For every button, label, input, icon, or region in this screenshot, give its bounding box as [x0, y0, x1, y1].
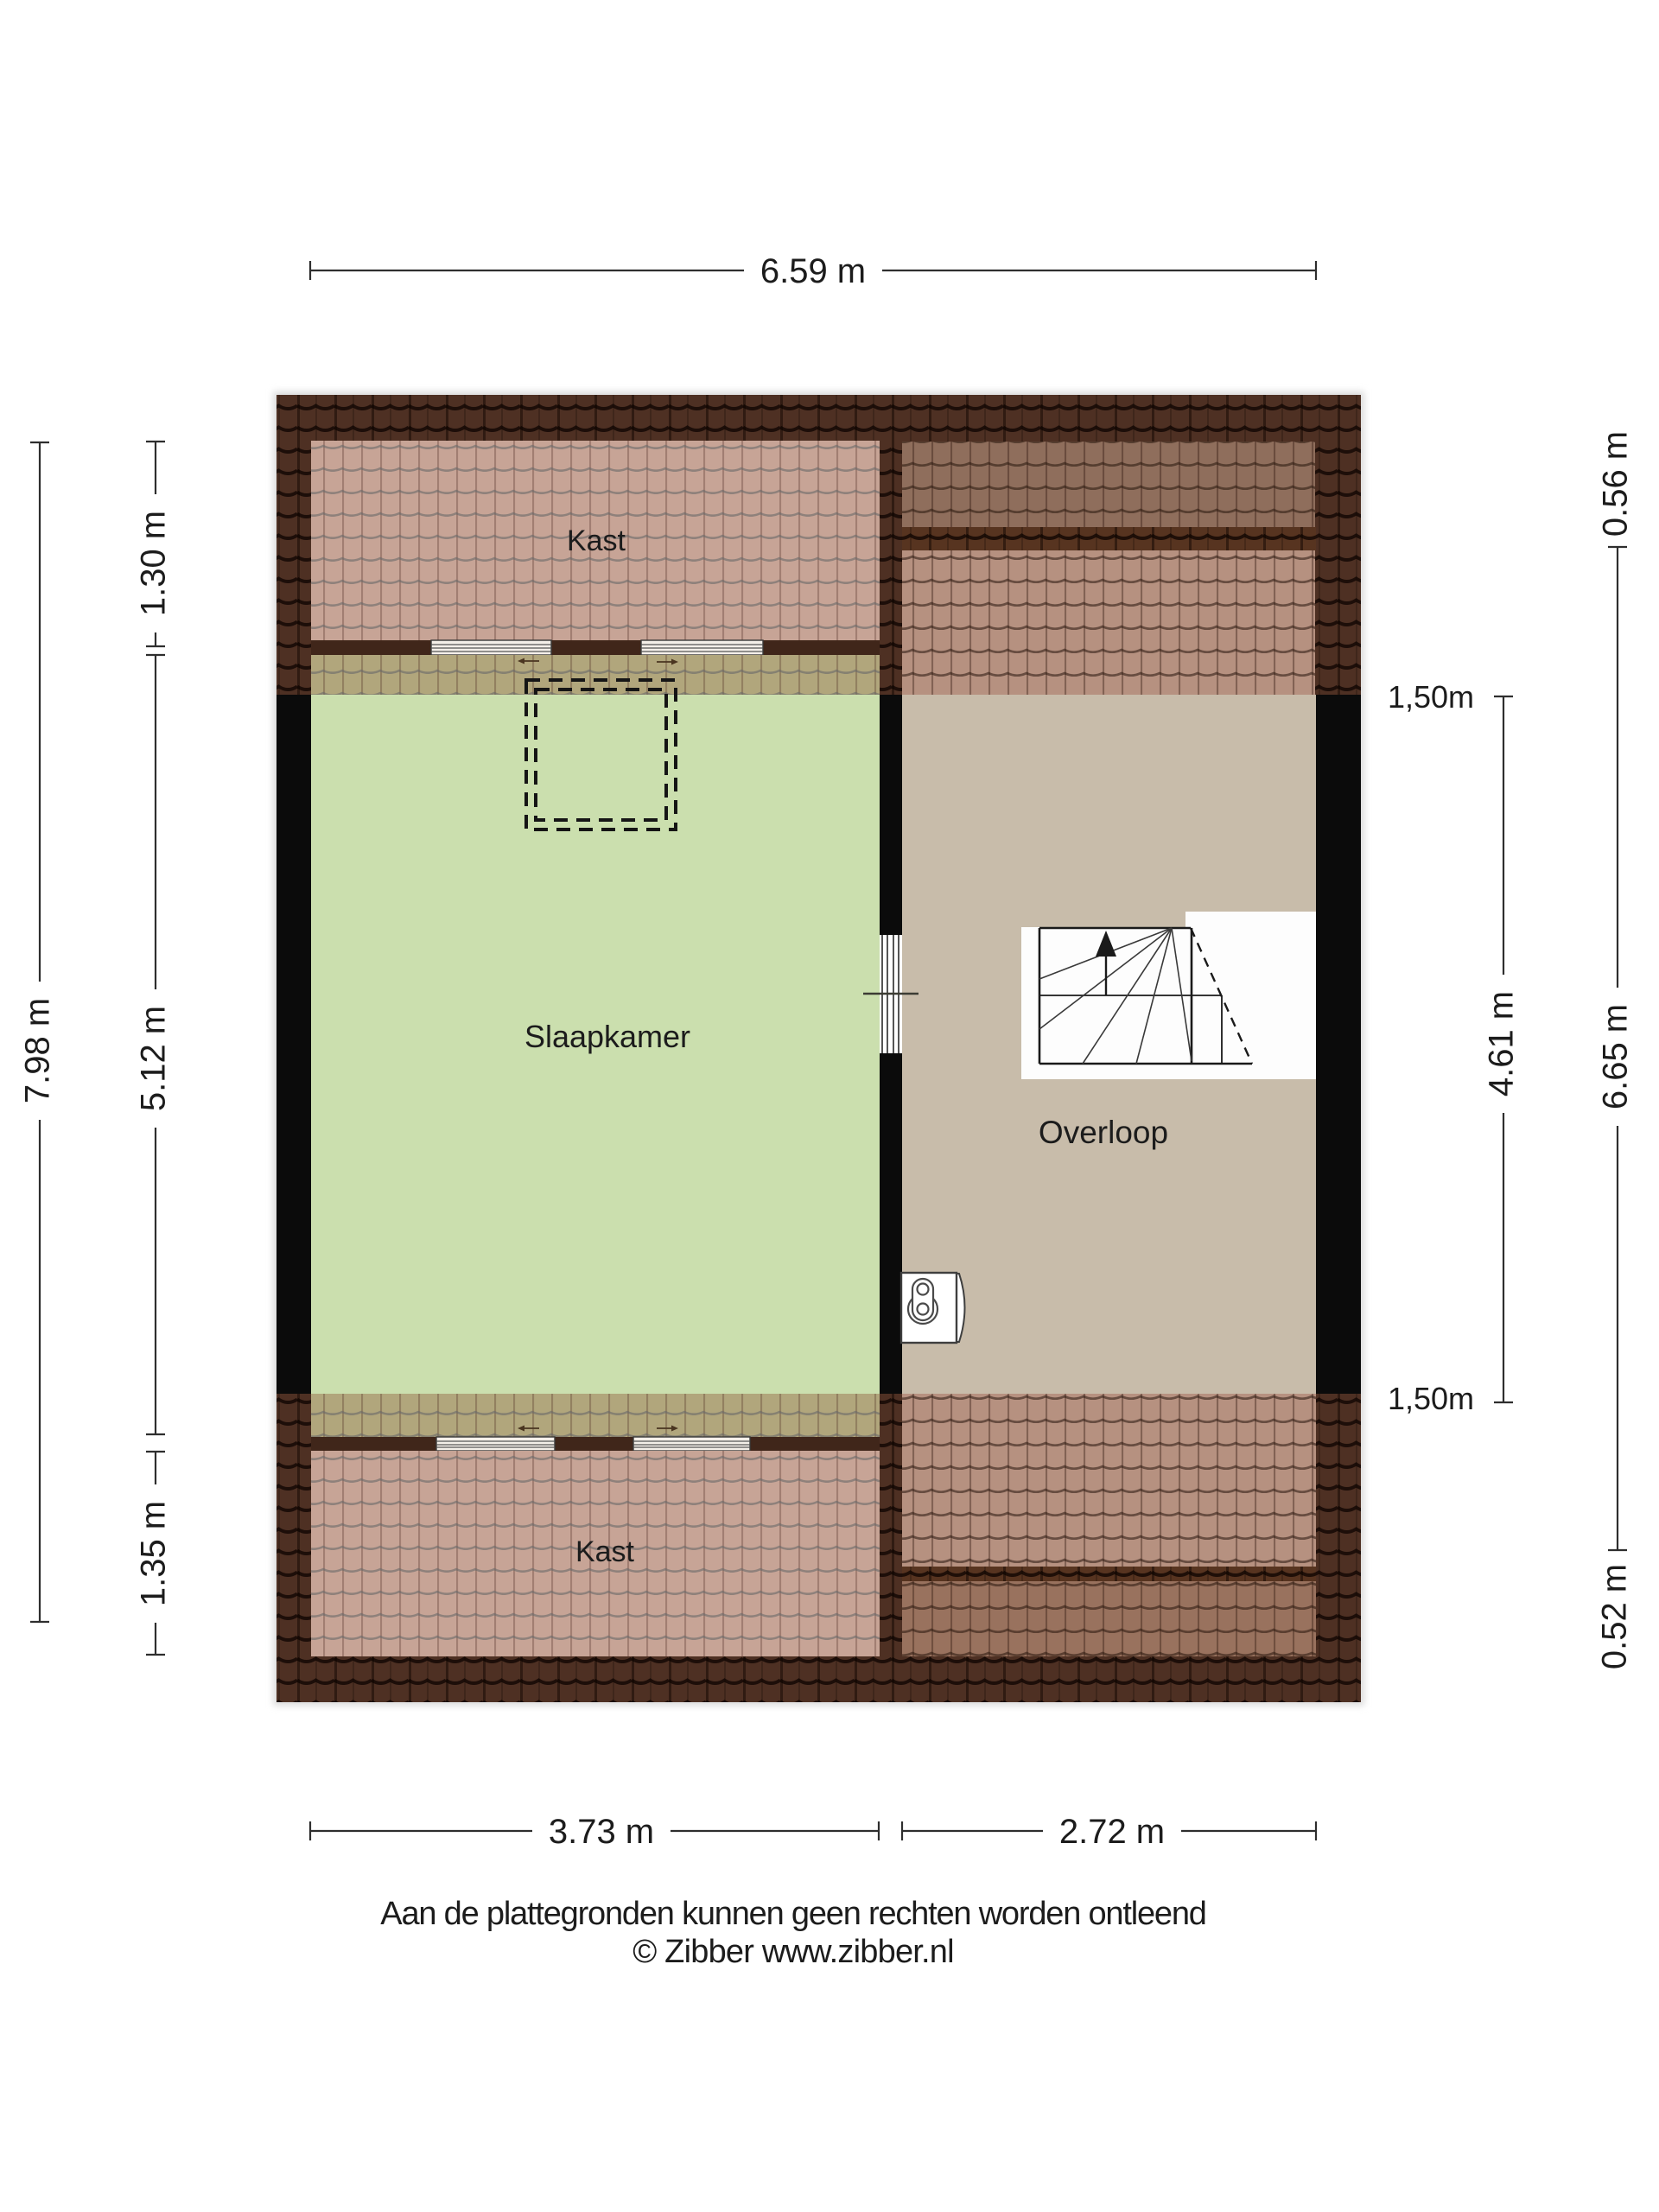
svg-text:Aan de plattegronden kunnen ge: Aan de plattegronden kunnen geen rechten…: [380, 1896, 1205, 1932]
svg-text:7.98 m: 7.98 m: [19, 998, 57, 1103]
svg-text:0.56 m: 0.56 m: [1597, 431, 1635, 537]
svg-text:5.12 m: 5.12 m: [135, 1006, 173, 1111]
svg-text:3.73 m: 3.73 m: [549, 1813, 654, 1851]
svg-text:2.72 m: 2.72 m: [1059, 1813, 1165, 1851]
svg-text:Overloop: Overloop: [1039, 1115, 1168, 1150]
svg-text:Kast: Kast: [567, 524, 626, 557]
svg-text:4.61 m: 4.61 m: [1483, 991, 1521, 1096]
svg-text:Slaapkamer: Slaapkamer: [524, 1019, 690, 1054]
svg-text:Kast: Kast: [575, 1535, 635, 1568]
svg-text:1,50m: 1,50m: [1388, 1381, 1474, 1416]
svg-text:6.65 m: 6.65 m: [1597, 1004, 1635, 1109]
svg-text:0.52 m: 0.52 m: [1596, 1564, 1634, 1669]
svg-text:6.59 m: 6.59 m: [760, 252, 866, 290]
svg-text:© Zibber www.zibber.nl: © Zibber www.zibber.nl: [632, 1934, 954, 1970]
svg-text:1,50m: 1,50m: [1388, 679, 1474, 715]
svg-text:1.30 m: 1.30 m: [135, 511, 173, 616]
svg-text:1.35 m: 1.35 m: [135, 1501, 173, 1606]
